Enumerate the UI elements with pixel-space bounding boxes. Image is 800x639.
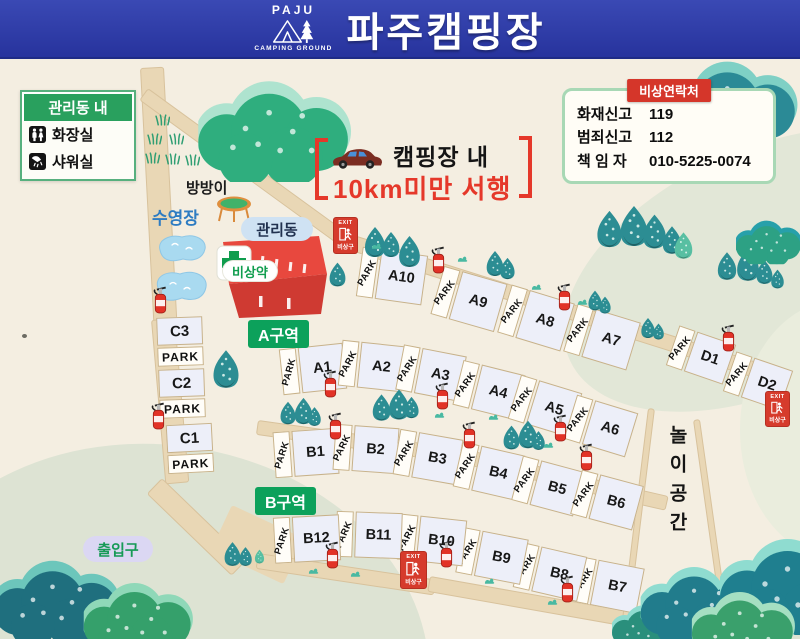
site-b6: PARKB6 (570, 470, 644, 531)
bush-foliage (690, 575, 800, 639)
pine-tree-icon (238, 546, 253, 567)
park-strip: PARK (338, 340, 360, 388)
fire-extinguisher-icon (152, 286, 169, 315)
exit-sign-en: EXIT (338, 220, 352, 226)
contact-label: 범죄신고 (577, 126, 649, 149)
park-strip: PARK (157, 346, 204, 367)
car-icon (330, 145, 384, 172)
notice-bracket-right (519, 136, 532, 198)
park-strip: PARK (273, 517, 292, 564)
legend-item-label: 화장실 (52, 124, 93, 145)
pool-label: 수영장 (152, 204, 199, 229)
bush-foliage (80, 565, 200, 639)
pine-tree-icon (254, 549, 265, 564)
shrub-tuft-icon (457, 254, 468, 263)
first-aid-label: 비상약 (223, 261, 277, 281)
emergency-exit-sign: EXIT 비상구 (333, 217, 358, 254)
emergency-contacts-title: 비상연락처 (627, 79, 711, 102)
pine-tree-icon (403, 396, 420, 419)
shrub-tuft-icon (350, 569, 361, 578)
campground-map-sign: PAJU CAMPING GROUND 파주캠핑장 PARKA1PARKA2PA… (0, 0, 800, 639)
toilet-icon (29, 126, 46, 143)
contact-value: 010-5225-0074 (649, 150, 751, 173)
fire-extinguisher-icon (578, 443, 595, 472)
emergency-contact-row: 책 임 자 010-5225-0074 (577, 150, 773, 173)
sign-header: PAJU CAMPING GROUND 파주캠핑장 (0, 0, 800, 59)
shower-icon (29, 153, 46, 170)
pine-tree-icon (307, 406, 322, 427)
pine-tree-icon (211, 346, 241, 392)
contact-value: 112 (649, 126, 673, 149)
site-label: C2 (158, 368, 205, 398)
notice-line1: 캠핑장 내 (393, 138, 489, 172)
grass-tuft-icon (145, 152, 160, 164)
site-label: C1 (166, 423, 213, 453)
zone-b-label: B구역 (255, 487, 316, 515)
management-label: 관리동 (241, 217, 313, 241)
legend-item-shower: 샤워실 (22, 148, 134, 179)
park-strip: PARK (272, 431, 292, 478)
pine-tree-icon (673, 231, 694, 260)
exit-sign-ko: 비상구 (769, 415, 786, 424)
emergency-contact-row: 화재신고 119 (577, 103, 773, 126)
shrub-tuft-icon (308, 566, 319, 575)
exit-sign-en: EXIT (406, 554, 420, 560)
fire-extinguisher-icon (720, 324, 737, 353)
shrub-tuft-icon (484, 576, 495, 585)
tent-tree-logo-icon (270, 17, 316, 45)
emergency-exit-sign: EXIT 비상구 (765, 391, 790, 427)
legend-item-toilet: 화장실 (22, 121, 134, 148)
site-label: C3 (156, 316, 203, 346)
park-strip: PARK (279, 348, 301, 396)
running-man-icon (339, 227, 353, 241)
pine-tree-icon (652, 323, 665, 340)
grass-tuft-icon (147, 133, 162, 145)
shrub-tuft-icon (531, 282, 542, 291)
site-label: B11 (354, 512, 403, 560)
fire-extinguisher-icon (552, 414, 569, 443)
sign-title: 파주캠핑장 (347, 0, 546, 58)
grass-tuft-icon (155, 114, 170, 126)
brand-bottom-text: CAMPING GROUND (254, 46, 332, 53)
pine-tree-icon (598, 296, 612, 314)
legend-item-label: 샤워실 (52, 151, 93, 172)
contact-label: 화재신고 (577, 103, 649, 126)
site-label: B9 (474, 531, 529, 585)
notice-line2: 10km미만 서행 (333, 169, 511, 206)
pine-tree-icon (397, 235, 422, 268)
grass-tuft-icon (165, 153, 180, 165)
fire-extinguisher-icon (322, 370, 339, 399)
fire-extinguisher-icon (150, 402, 167, 431)
play-area-label: 놀이공간 (663, 425, 690, 541)
legend-title: 관리동 내 (22, 92, 134, 121)
emergency-exit-sign: EXIT 비상구 (400, 551, 427, 589)
notice-bracket-left (315, 138, 328, 200)
bush-foliage (736, 198, 800, 276)
running-man-icon (771, 401, 784, 414)
fire-extinguisher-icon (434, 382, 451, 411)
pine-tree-icon (499, 257, 516, 280)
fire-extinguisher-icon (324, 541, 341, 570)
fire-extinguisher-icon (559, 575, 576, 604)
pine-tree-icon (328, 261, 347, 288)
exit-sign-ko: 비상구 (337, 242, 354, 251)
speck (22, 334, 27, 338)
site-b11: PARKB11 (335, 511, 403, 559)
shrub-tuft-icon (371, 241, 382, 250)
fire-extinguisher-icon (461, 421, 478, 450)
brand-logo: PAJU CAMPING GROUND (254, 4, 332, 53)
emergency-contacts-box: 비상연락처 화재신고 119 범죄신고 112 책 임 자 010-5225-0… (562, 88, 776, 184)
running-man-icon (406, 561, 421, 576)
shrub-tuft-icon (488, 412, 499, 421)
fire-extinguisher-icon (556, 283, 573, 312)
zone-a-label: A구역 (248, 320, 309, 348)
contact-value: 119 (649, 103, 673, 126)
legend-box: 관리동 내 화장실 샤워실 (20, 90, 136, 181)
fire-extinguisher-icon (430, 246, 447, 275)
site-b3: PARKB3 (392, 429, 463, 485)
exit-sign-en: EXIT (770, 394, 784, 400)
brand-top-text: PAJU (272, 4, 315, 16)
shrub-tuft-icon (434, 410, 445, 419)
site-c1: C1PARK (166, 423, 215, 474)
emergency-contact-row: 범죄신고 112 (577, 126, 773, 149)
site-label: B2 (351, 425, 399, 474)
exit-sign-ko: 비상구 (405, 577, 422, 586)
fire-extinguisher-icon (327, 412, 344, 441)
grass-tuft-icon (169, 133, 184, 145)
fire-extinguisher-icon (438, 540, 455, 569)
shrub-tuft-icon (577, 297, 588, 306)
site-c3: C3PARK (156, 316, 204, 367)
contact-label: 책 임 자 (577, 150, 649, 173)
shrub-tuft-icon (547, 597, 558, 606)
park-strip: PARK (167, 453, 214, 474)
